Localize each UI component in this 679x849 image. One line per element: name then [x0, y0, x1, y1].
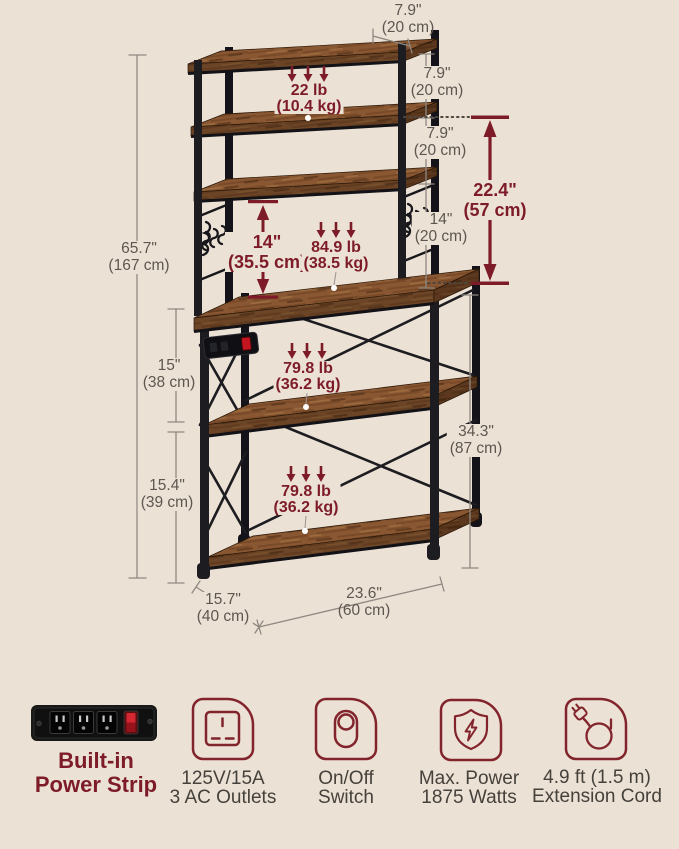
load-arrows-bottom-shelf: [287, 466, 326, 482]
dim-depth: 15.7"(40 cm): [194, 592, 253, 625]
socket-icon: [191, 697, 255, 761]
dim-total-height: 65.7"(167 cm): [105, 241, 172, 274]
dim-table-clearance: 15"(38 cm): [140, 358, 199, 391]
feature-cord-label: 4.9 ft (1.5 m)Extension Cord: [532, 769, 662, 806]
dim-width: 23.6"(60 cm): [335, 586, 394, 619]
mounted-power-strip: [203, 332, 259, 359]
toggle-switch-icon: [314, 697, 378, 761]
feature-max-power-label: Max. Power1875 Watts: [419, 770, 519, 807]
coiled-cord-plug-icon: [564, 697, 628, 761]
lower-unit: [194, 266, 482, 579]
shield-lightning-icon: [439, 698, 503, 762]
load-arrows-tabletop: [317, 222, 356, 238]
capacity-middle-shelf: 79.8 lb(36.2 kg): [274, 361, 343, 392]
power-strip-photo: [27, 701, 163, 745]
capacity-tabletop: 84.9 lb(38.5 kg): [302, 240, 371, 271]
dim-hutch-height: 22.4"(57 cm): [460, 180, 529, 220]
hutch: [188, 30, 439, 316]
dim-hutch-clearance: 14"(35.5 cm): [225, 232, 309, 272]
dim-base-height: 34.3"(87 cm): [447, 424, 506, 457]
capacity-hutch-shelf: 22 lb(10.4 kg): [275, 83, 344, 114]
feature-switch-label: On/OffSwitch: [318, 770, 374, 807]
dim-top-depth: 7.9"(20 cm): [379, 3, 438, 36]
feature-outlets-label: 125V/15A3 AC Outlets: [170, 770, 277, 807]
capacity-bottom-shelf: 79.8 lb(36.2 kg): [272, 484, 341, 515]
dim-gap-top: 7.9"(20 cm): [408, 66, 467, 99]
feature-power-strip-label: Built-inPower Strip: [35, 749, 157, 796]
dim-shelf-clearance: 15.4"(39 cm): [138, 478, 197, 511]
load-arrows-middle-shelf: [288, 343, 327, 359]
dim-gap-middle: 7.9"(20 cm): [411, 126, 470, 159]
product-dimension-diagram: 7.9"(20 cm) 7.9"(20 cm) 7.9"(20 cm) 14"(…: [0, 0, 679, 849]
